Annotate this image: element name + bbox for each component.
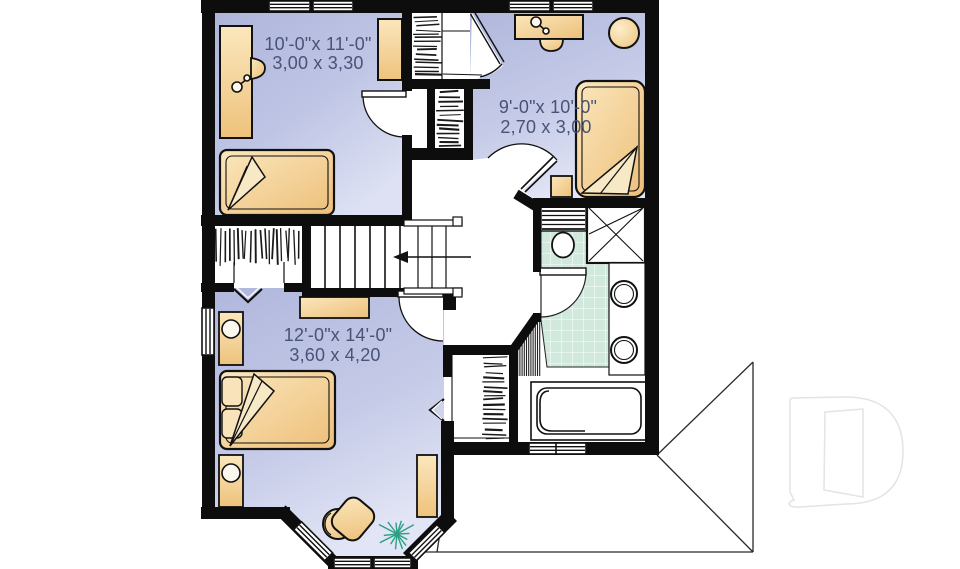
svg-text:12'-0"x 14'-0": 12'-0"x 14'-0" [284, 325, 393, 345]
svg-text:3,00 x 3,30: 3,00 x 3,30 [272, 53, 363, 73]
svg-text:2,70 x 3,00: 2,70 x 3,00 [500, 117, 591, 137]
svg-text:9'-0"x 10'-0": 9'-0"x 10'-0" [499, 97, 597, 117]
svg-text:10'-0"x 11'-0": 10'-0"x 11'-0" [264, 34, 371, 54]
svg-text:3,60 x 4,20: 3,60 x 4,20 [289, 345, 380, 365]
